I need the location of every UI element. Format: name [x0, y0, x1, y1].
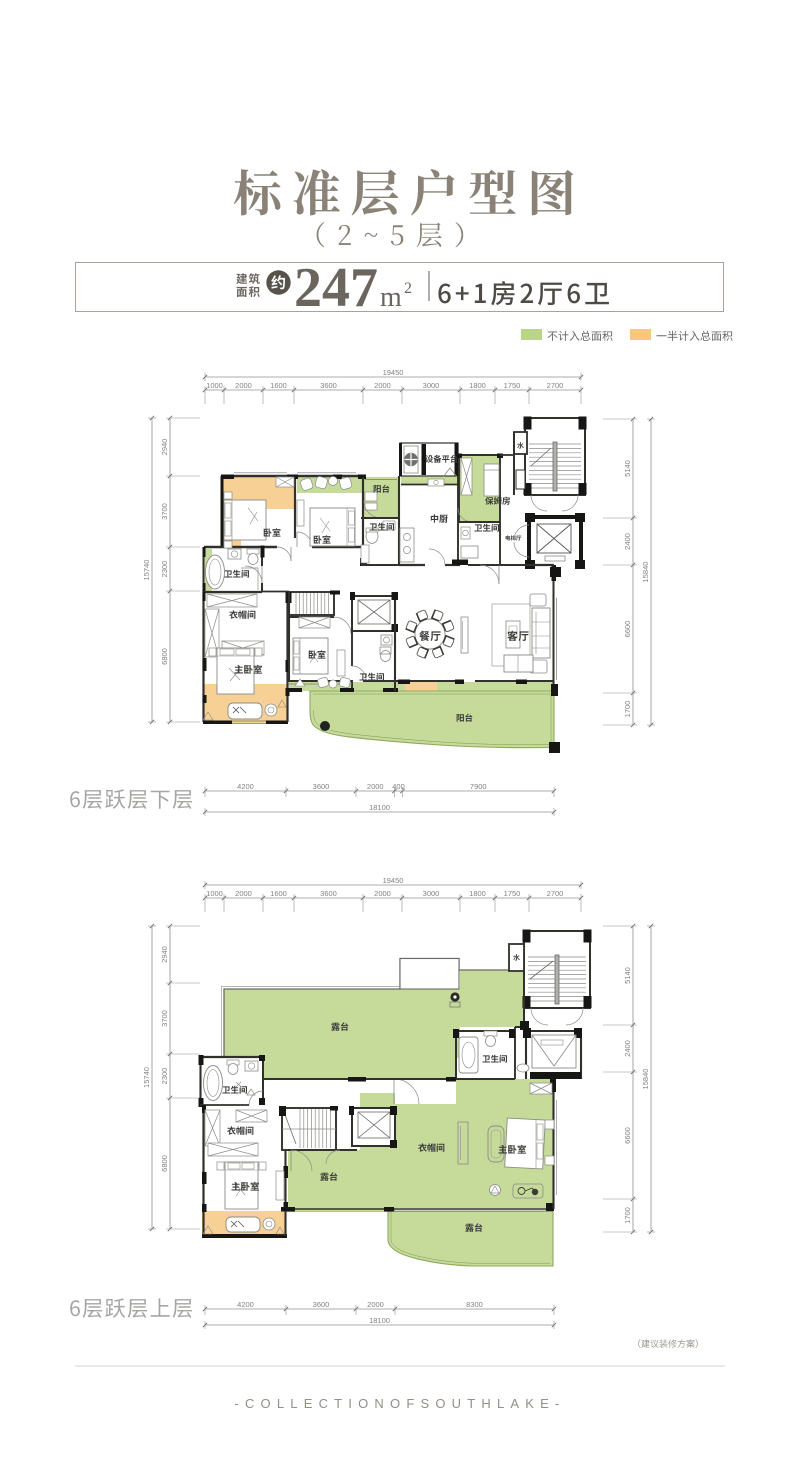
svg-text:3600: 3600 [313, 1300, 330, 1309]
svg-text:5140: 5140 [623, 460, 632, 477]
svg-text:15740: 15740 [142, 560, 151, 581]
svg-text:1600: 1600 [270, 889, 287, 898]
svg-text:2940: 2940 [160, 439, 169, 456]
svg-text:1750: 1750 [504, 889, 521, 898]
svg-text:15740: 15740 [142, 1067, 151, 1088]
svg-text:1700: 1700 [623, 1207, 632, 1224]
svg-text:6600: 6600 [623, 1127, 632, 1144]
svg-text:2700: 2700 [547, 381, 564, 390]
svg-text:7900: 7900 [470, 782, 487, 791]
svg-text:2000: 2000 [235, 381, 252, 390]
svg-text:19450: 19450 [383, 876, 404, 885]
svg-text:1700: 1700 [623, 701, 632, 718]
svg-text:19450: 19450 [383, 368, 404, 377]
svg-text:6800: 6800 [160, 1155, 169, 1172]
svg-text:1800: 1800 [469, 889, 486, 898]
svg-text:4200: 4200 [237, 1300, 254, 1309]
svg-text:2400: 2400 [623, 1040, 632, 1057]
svg-text:2400: 2400 [623, 533, 632, 550]
svg-text:4200: 4200 [237, 782, 254, 791]
svg-text:2300: 2300 [160, 1068, 169, 1085]
svg-text:-COLLECTIONOFSOUTHLAKE-: -COLLECTIONOFSOUTHLAKE- [234, 1396, 565, 1411]
svg-text:m: m [380, 282, 402, 313]
svg-text:1750: 1750 [504, 381, 521, 390]
svg-text:3600: 3600 [320, 889, 337, 898]
svg-text:3000: 3000 [423, 889, 440, 898]
svg-text:2000: 2000 [367, 1300, 384, 1309]
svg-text:3700: 3700 [160, 503, 169, 520]
svg-text:15840: 15840 [641, 1069, 650, 1090]
svg-text:1800: 1800 [469, 381, 486, 390]
svg-text:2000: 2000 [374, 381, 391, 390]
svg-text:3700: 3700 [160, 1010, 169, 1027]
svg-text:2700: 2700 [547, 889, 564, 898]
svg-text:2940: 2940 [160, 946, 169, 963]
svg-text:2000: 2000 [367, 782, 384, 791]
svg-text:18100: 18100 [369, 1316, 390, 1325]
svg-text:2: 2 [404, 280, 412, 297]
svg-text:1000: 1000 [206, 381, 223, 390]
svg-text:6600: 6600 [623, 621, 632, 638]
svg-text:247: 247 [294, 257, 378, 319]
svg-text:5140: 5140 [623, 967, 632, 984]
svg-text:3600: 3600 [320, 381, 337, 390]
svg-text:400: 400 [392, 782, 405, 791]
svg-text:18100: 18100 [369, 803, 390, 812]
svg-text:1600: 1600 [270, 381, 287, 390]
svg-text:6800: 6800 [160, 648, 169, 665]
svg-text:3000: 3000 [423, 381, 440, 390]
svg-text:1000: 1000 [206, 889, 223, 898]
svg-text:2000: 2000 [374, 889, 391, 898]
svg-text:2300: 2300 [160, 561, 169, 578]
svg-text:2000: 2000 [235, 889, 252, 898]
svg-text:3600: 3600 [313, 782, 330, 791]
svg-text:15840: 15840 [641, 562, 650, 583]
svg-text:8300: 8300 [466, 1300, 483, 1309]
